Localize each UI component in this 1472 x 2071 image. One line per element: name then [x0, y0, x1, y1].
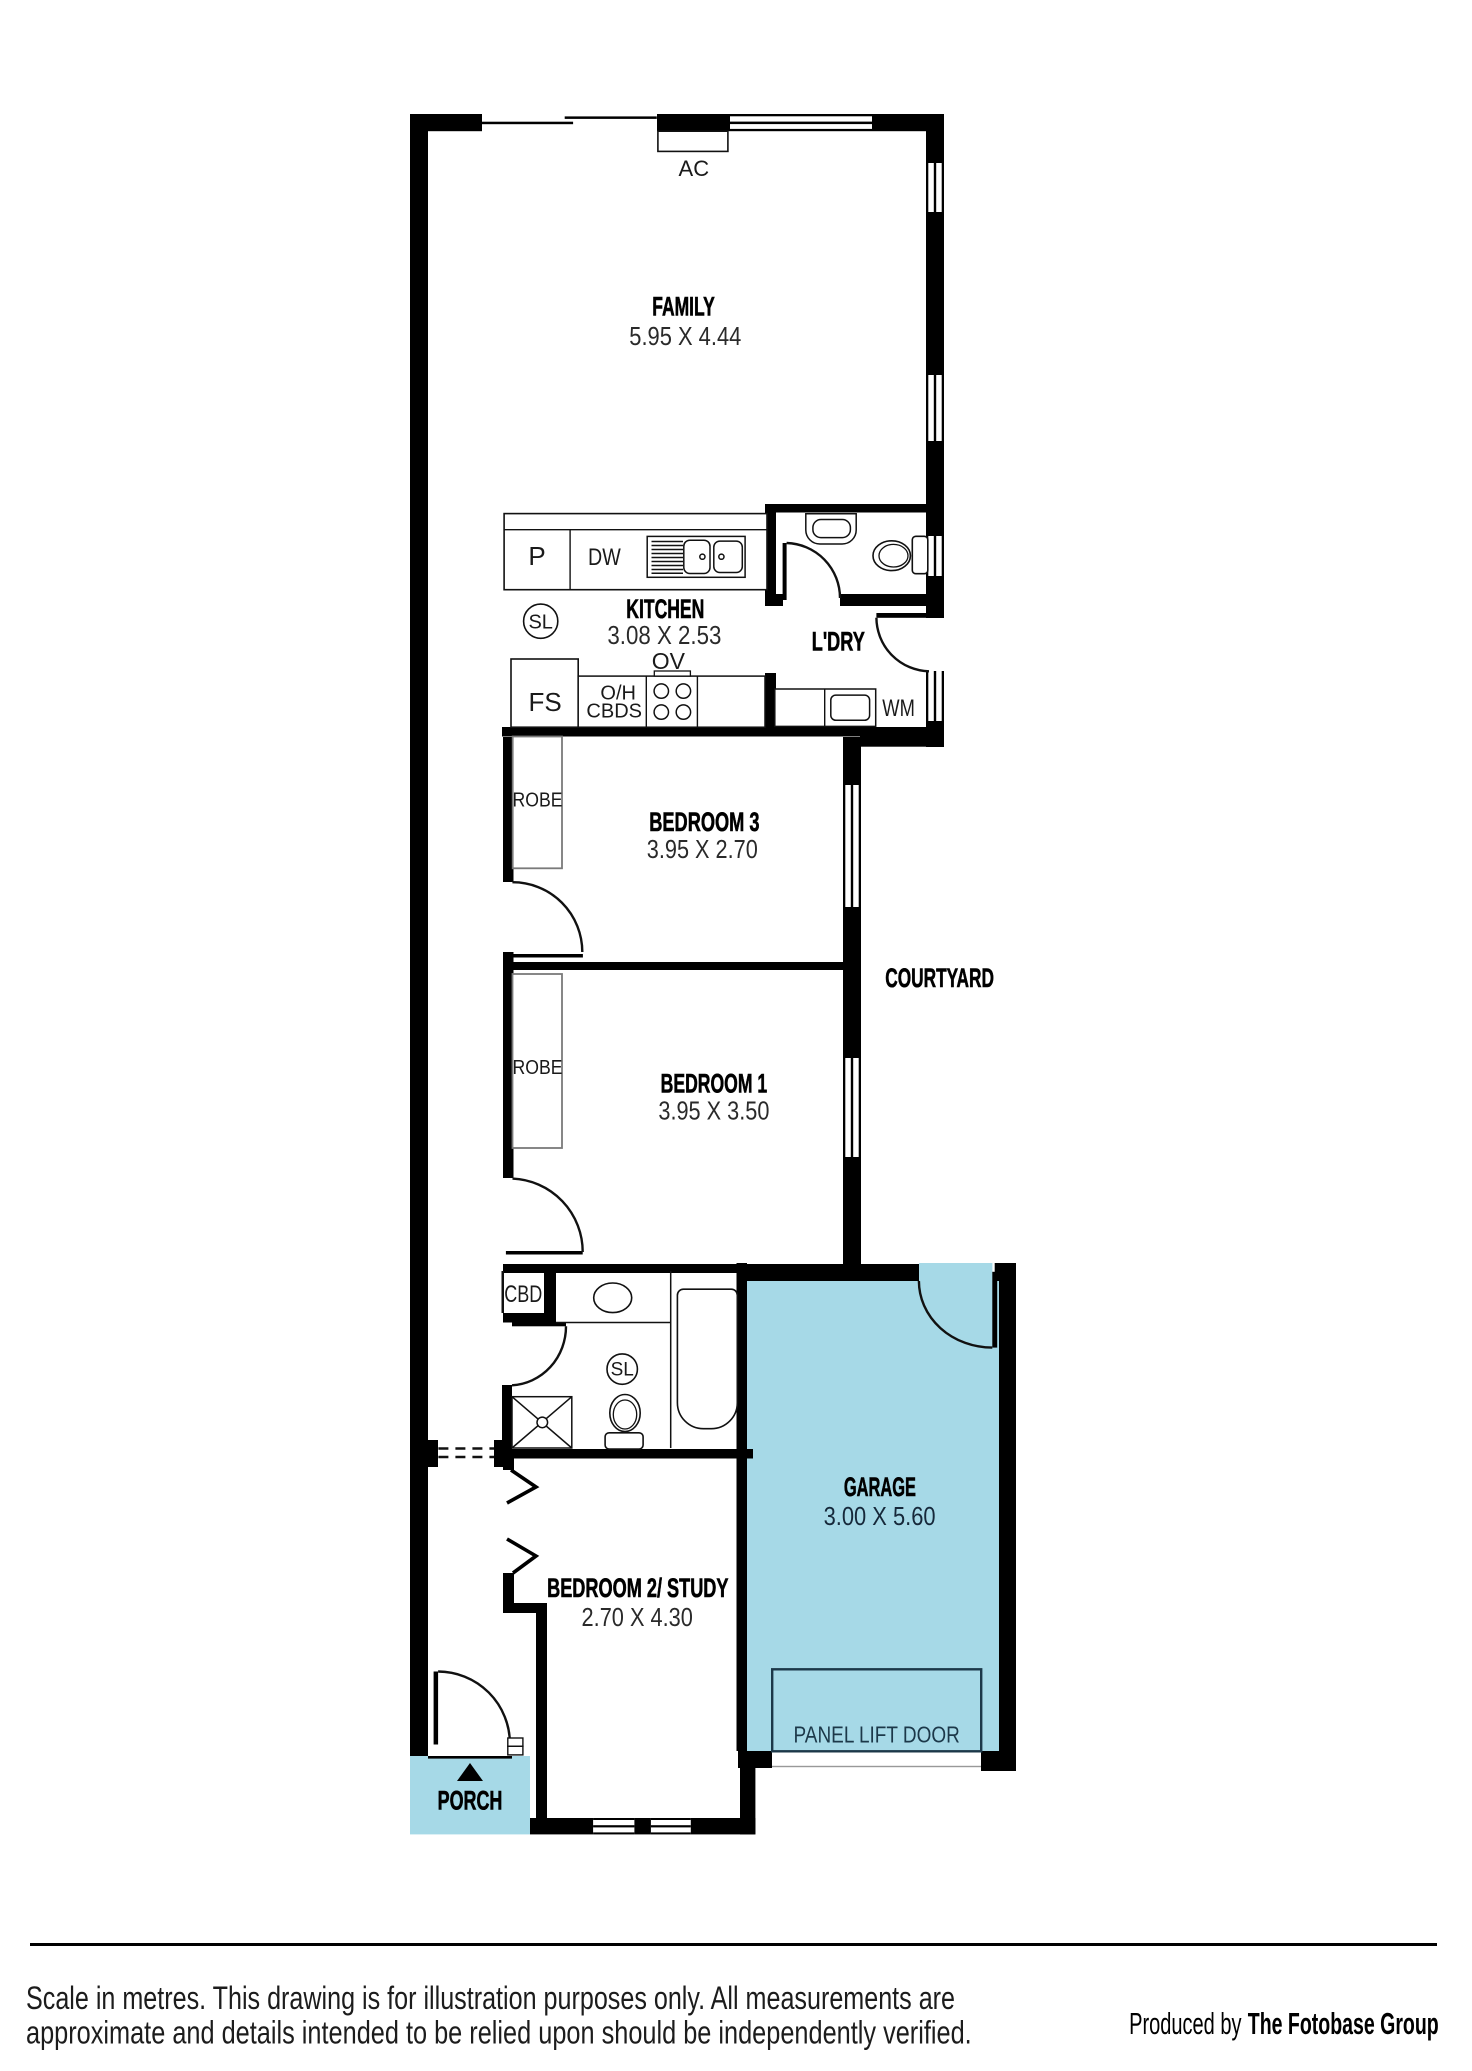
svg-text:WM: WM — [882, 695, 915, 722]
svg-text:OV: OV — [652, 648, 686, 674]
svg-text:3.08 X 2.53: 3.08 X 2.53 — [607, 620, 721, 650]
svg-text:approximate and details intend: approximate and details intended to be r… — [26, 2015, 972, 2051]
svg-text:ROBE: ROBE — [513, 790, 563, 812]
svg-text:Scale in metres. This drawing: Scale in metres. This drawing is for ill… — [26, 1980, 955, 2016]
svg-text:FAMILY: FAMILY — [652, 291, 715, 321]
svg-text:PORCH: PORCH — [438, 1786, 503, 1816]
svg-text:GARAGE: GARAGE — [844, 1472, 916, 1502]
svg-text:3.00 X 5.60: 3.00 X 5.60 — [824, 1501, 936, 1531]
svg-text:SL: SL — [528, 612, 552, 634]
svg-text:BEDROOM 3: BEDROOM 3 — [649, 807, 759, 837]
svg-text:COURTYARD: COURTYARD — [885, 963, 994, 993]
svg-text:BEDROOM 2/ STUDY: BEDROOM 2/ STUDY — [547, 1573, 728, 1603]
svg-text:AC: AC — [679, 156, 710, 181]
svg-text:FS: FS — [528, 687, 561, 717]
svg-text:3.95 X 3.50: 3.95 X 3.50 — [658, 1096, 769, 1126]
svg-text:L'DRY: L'DRY — [812, 626, 865, 656]
svg-text:The Fotobase Group: The Fotobase Group — [1248, 2006, 1439, 2041]
svg-text:ROBE: ROBE — [513, 1057, 563, 1079]
svg-text:BEDROOM 1: BEDROOM 1 — [661, 1069, 768, 1099]
svg-text:5.95 X 4.44: 5.95 X 4.44 — [629, 321, 741, 351]
svg-text:2.70 X 4.30: 2.70 X 4.30 — [582, 1602, 693, 1632]
svg-text:CBDS: CBDS — [586, 701, 642, 723]
svg-text:DW: DW — [588, 544, 621, 571]
svg-text:SL: SL — [611, 1360, 634, 1381]
svg-text:3.95 X 2.70: 3.95 X 2.70 — [647, 834, 758, 864]
svg-text:CBD: CBD — [504, 1281, 542, 1308]
svg-text:Produced by: Produced by — [1129, 2006, 1242, 2041]
svg-text:P: P — [528, 541, 545, 571]
svg-text:PANEL LIFT DOOR: PANEL LIFT DOOR — [794, 1722, 960, 1748]
